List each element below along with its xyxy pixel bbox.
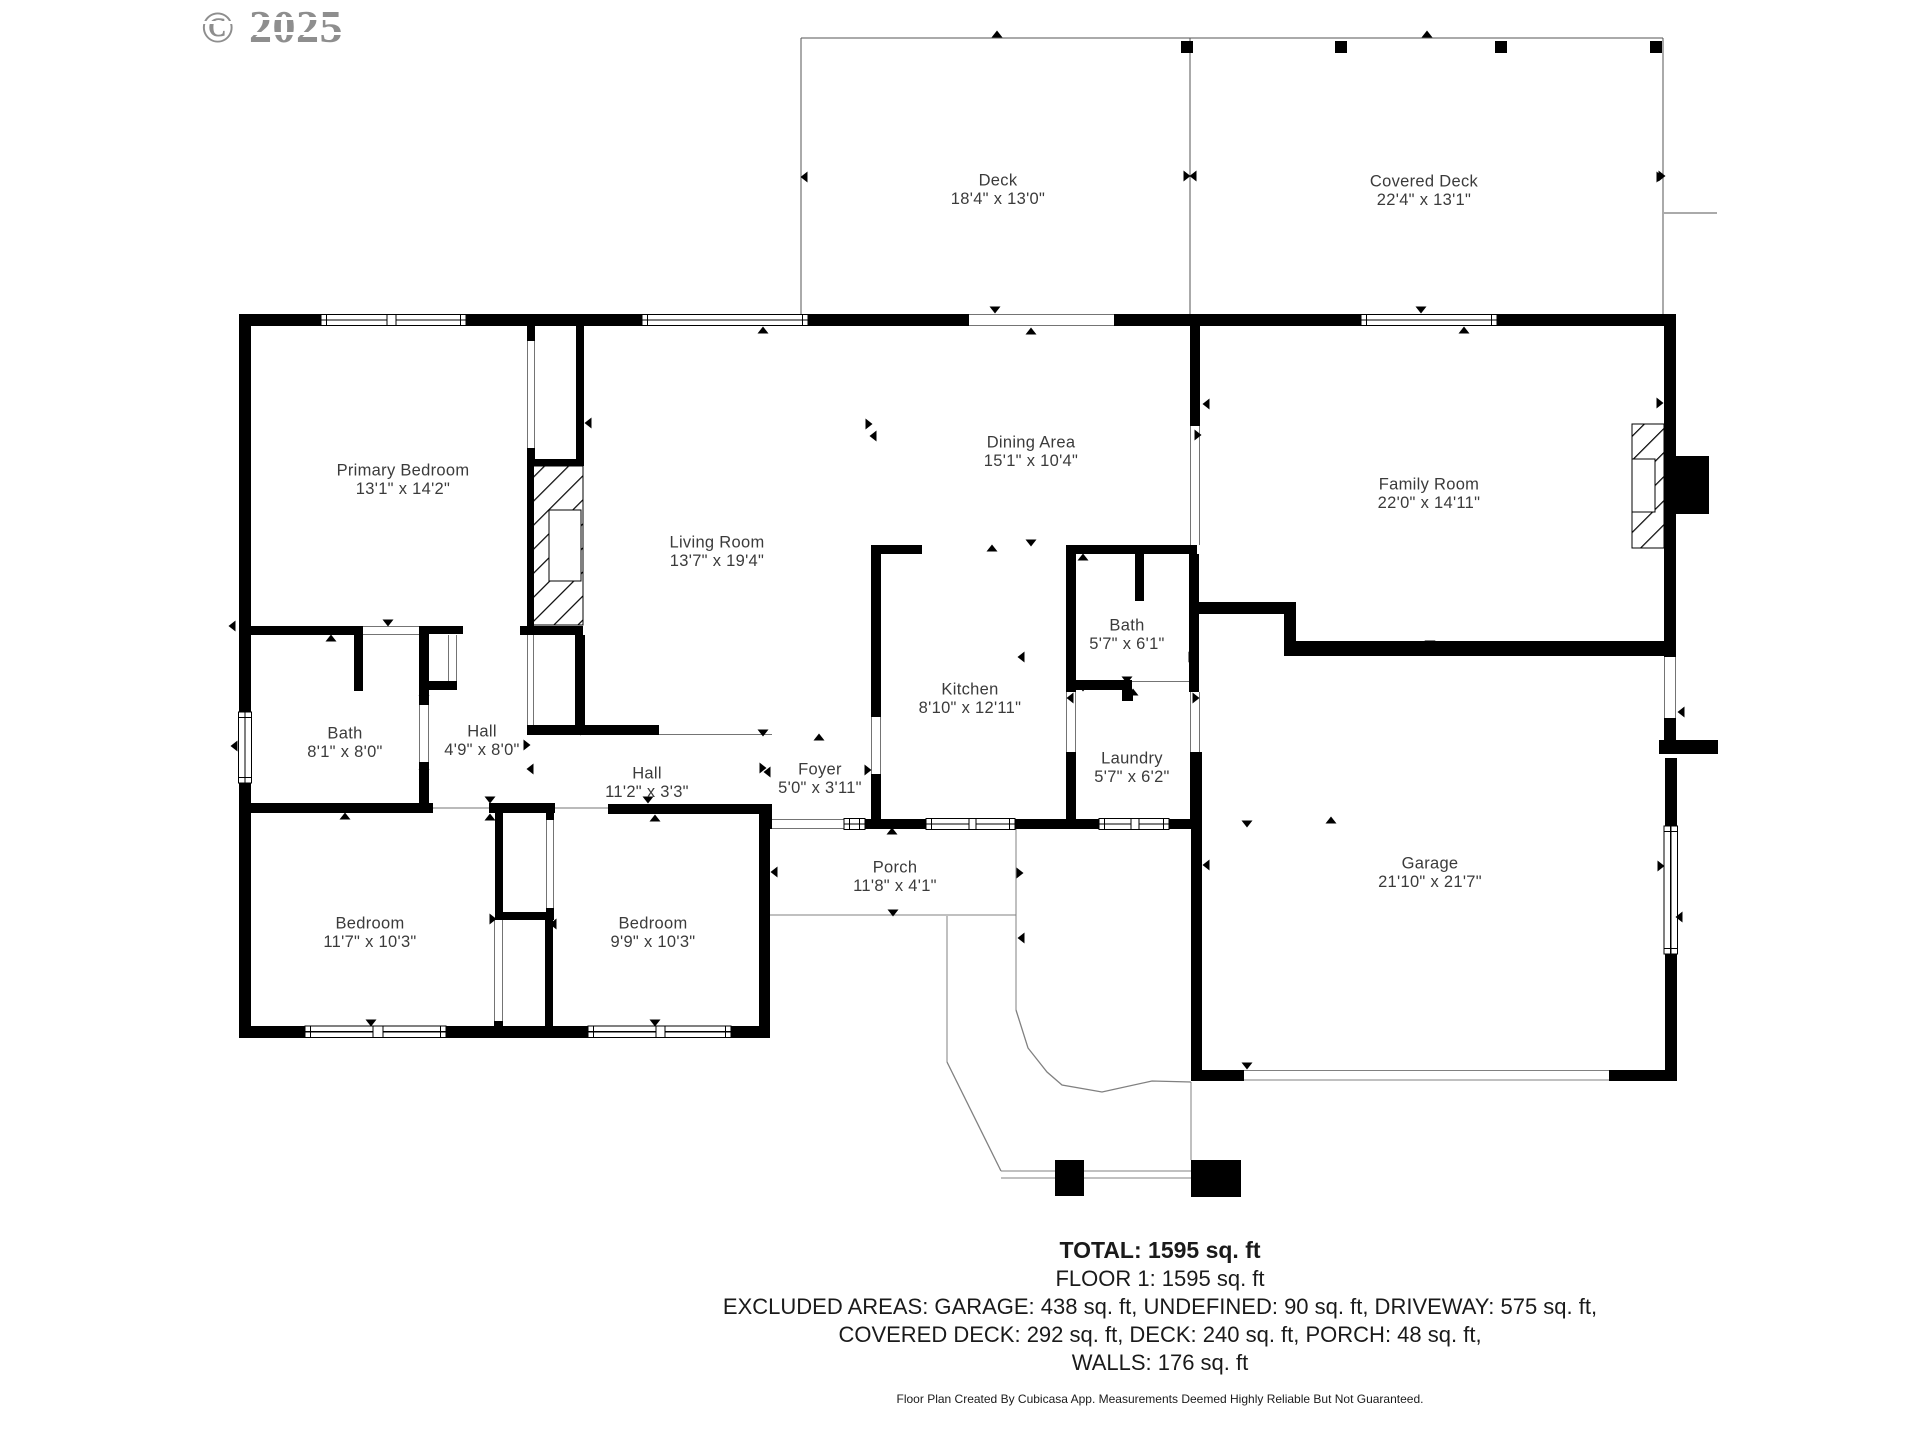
svg-text:8'1" x 8'0": 8'1" x 8'0" xyxy=(307,743,382,761)
svg-text:Living Room: Living Room xyxy=(669,534,764,552)
svg-text:18'4" x 13'0": 18'4" x 13'0" xyxy=(951,190,1045,208)
svg-text:5'7" x 6'2": 5'7" x 6'2" xyxy=(1094,768,1169,786)
svg-text:Family Room: Family Room xyxy=(1379,476,1479,494)
svg-text:Floor Plan Created By Cubicasa: Floor Plan Created By Cubicasa App. Meas… xyxy=(897,1392,1424,1406)
svg-text:5'7" x 6'1": 5'7" x 6'1" xyxy=(1089,635,1164,653)
svg-text:22'0" x 14'11": 22'0" x 14'11" xyxy=(1378,494,1481,512)
svg-text:Covered Deck: Covered Deck xyxy=(1370,173,1479,191)
svg-text:Hall: Hall xyxy=(467,723,497,741)
svg-text:Bath: Bath xyxy=(327,725,362,743)
svg-text:5'0" x 3'11": 5'0" x 3'11" xyxy=(778,779,862,797)
svg-text:Bedroom: Bedroom xyxy=(618,915,687,933)
svg-text:Kitchen: Kitchen xyxy=(941,681,998,699)
svg-text:13'7" x 19'4": 13'7" x 19'4" xyxy=(670,552,764,570)
svg-text:Bath: Bath xyxy=(1109,617,1144,635)
svg-text:21'10" x 21'7": 21'10" x 21'7" xyxy=(1378,873,1482,891)
svg-text:Laundry: Laundry xyxy=(1101,750,1163,768)
svg-text:4'9" x 8'0": 4'9" x 8'0" xyxy=(444,741,519,759)
svg-text:Bedroom: Bedroom xyxy=(335,915,404,933)
svg-text:9'9" x 10'3": 9'9" x 10'3" xyxy=(611,933,696,951)
svg-text:8'10" x 12'11": 8'10" x 12'11" xyxy=(919,699,1022,717)
svg-text:15'1" x 10'4": 15'1" x 10'4" xyxy=(984,452,1078,470)
svg-text:Deck: Deck xyxy=(979,172,1018,190)
svg-text:Garage: Garage xyxy=(1402,855,1459,873)
svg-text:Primary Bedroom: Primary Bedroom xyxy=(337,462,470,480)
svg-text:Foyer: Foyer xyxy=(798,761,842,779)
svg-text:EXCLUDED AREAS: GARAGE: 438 sq: EXCLUDED AREAS: GARAGE: 438 sq. ft, UNDE… xyxy=(723,1294,1597,1319)
svg-text:Dining Area: Dining Area xyxy=(987,434,1076,452)
svg-text:11'2" x 3'3": 11'2" x 3'3" xyxy=(605,783,689,801)
svg-text:2025: 2025 xyxy=(249,1,343,52)
svg-text:11'8" x 4'1": 11'8" x 4'1" xyxy=(853,877,937,895)
svg-text:WALLS: 176 sq. ft: WALLS: 176 sq. ft xyxy=(1072,1350,1249,1375)
svg-text:TOTAL: 1595 sq. ft: TOTAL: 1595 sq. ft xyxy=(1059,1237,1260,1263)
svg-text:COVERED DECK: 292 sq. ft, DECK: COVERED DECK: 292 sq. ft, DECK: 240 sq. … xyxy=(838,1322,1481,1347)
svg-text:13'1" x 14'2": 13'1" x 14'2" xyxy=(356,480,450,498)
svg-text:11'7" x 10'3": 11'7" x 10'3" xyxy=(323,933,416,951)
svg-text:FLOOR 1: 1595 sq. ft: FLOOR 1: 1595 sq. ft xyxy=(1055,1266,1264,1291)
svg-text:Porch: Porch xyxy=(873,859,918,877)
svg-text:22'4" x 13'1": 22'4" x 13'1" xyxy=(1377,191,1471,209)
svg-text:Hall: Hall xyxy=(632,765,662,783)
svg-text:©: © xyxy=(201,3,234,52)
